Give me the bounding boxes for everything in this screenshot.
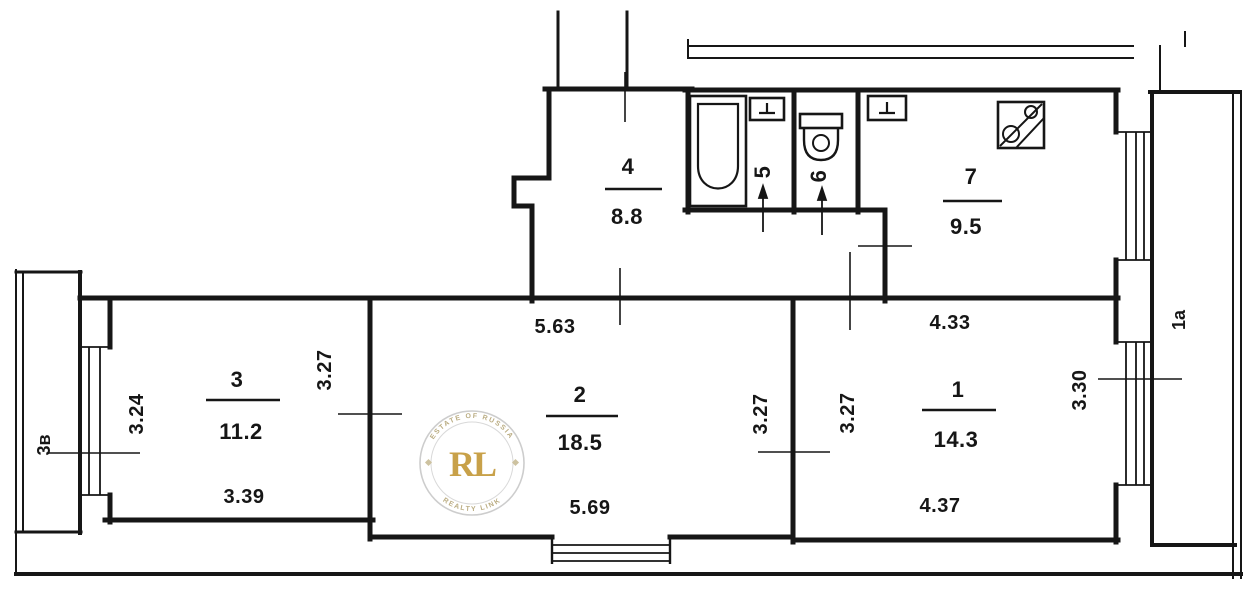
dim-room3-right: 3.27 — [314, 350, 336, 391]
room-labels: 1 14.3 2 18.5 3 11.2 4 8.8 5 6 7 9.5 — [206, 154, 1002, 455]
room4-area: 8.8 — [611, 204, 643, 229]
window-kitchen-balcony-part — [1116, 132, 1152, 260]
room5-number: 5 — [750, 166, 775, 179]
watermark-letters: RL — [449, 444, 496, 484]
room2-number: 2 — [574, 382, 587, 407]
leader-room5-arrow — [759, 186, 767, 198]
stove-icon — [998, 102, 1044, 148]
dimension-labels: 5.63 4.33 3.39 5.69 4.37 3.24 3.27 3.27 … — [34, 309, 1189, 519]
dim-room2-top: 5.63 — [535, 316, 576, 338]
toilet-icon-part — [800, 114, 842, 128]
window-room2-bottom-part — [552, 537, 670, 564]
window-kitchen-balcony — [1116, 132, 1152, 260]
room7-area: 9.5 — [950, 214, 982, 239]
window-room1-balcony — [1116, 342, 1152, 485]
hall-left-wall — [514, 89, 549, 301]
sink-icon-part — [759, 103, 775, 113]
floor-plan-drawing: 1 14.3 2 18.5 3 11.2 4 8.8 5 6 7 9.5 5.6… — [0, 0, 1255, 600]
dim-room1-left: 3.27 — [837, 393, 859, 434]
dim-room3-bottom: 3.39 — [224, 486, 265, 508]
kitchen-sink-icon-part — [879, 102, 895, 113]
bathtub-icon — [690, 96, 746, 206]
dimension-ticks — [48, 72, 1182, 453]
building-left-edge — [16, 270, 23, 575]
room1-number: 1 — [952, 377, 965, 402]
dim-room3-left: 3.24 — [126, 393, 148, 434]
room3-area: 11.2 — [219, 419, 263, 444]
walls — [16, 12, 1241, 578]
window-room3-balcony-part — [80, 347, 110, 495]
dim-room2-bottom: 5.69 — [570, 497, 611, 519]
toilet-icon-part — [804, 128, 838, 160]
dim-room1-right: 3.30 — [1069, 370, 1091, 411]
dim-room1-top: 4.33 — [930, 312, 971, 334]
toilet-icon — [800, 114, 842, 160]
floor-plan-page: 1 14.3 2 18.5 3 11.2 4 8.8 5 6 7 9.5 5.6… — [0, 0, 1255, 600]
room7-number: 7 — [965, 164, 978, 189]
window-kitchen-balcony-part — [1126, 132, 1144, 260]
room1-area: 14.3 — [934, 427, 979, 452]
exterior-corridor-wall — [688, 40, 1133, 58]
building-right-edge — [1233, 92, 1241, 578]
room6-number: 6 — [806, 170, 831, 183]
watermark-logo: ESTATE OF RUSSIA REALTY LINK RL — [419, 410, 525, 516]
window-room1-balcony-part — [1126, 342, 1144, 485]
bathtub-icon-part — [698, 104, 738, 189]
dim-room1-bottom: 4.37 — [920, 495, 961, 517]
room2-area: 18.5 — [558, 430, 603, 455]
balcony-right-label: 1а — [1169, 309, 1189, 330]
kitchen-sink-icon — [868, 96, 906, 120]
balcony-left-label: 3в — [34, 434, 54, 455]
sink-icon — [750, 98, 784, 120]
exterior-corridor-wall — [1160, 32, 1185, 90]
room3-number: 3 — [231, 367, 244, 392]
leader-room6-arrow — [818, 188, 826, 200]
dim-room2-right: 3.27 — [750, 394, 772, 435]
window-room3-balcony — [80, 347, 110, 495]
toilet-icon-part — [813, 135, 829, 151]
window-room2-bottom-part — [552, 545, 670, 561]
room4-number: 4 — [622, 154, 635, 179]
window-room2-bottom — [552, 537, 670, 564]
fixtures — [690, 96, 1044, 206]
window-room1-balcony-part — [1116, 342, 1152, 485]
window-room3-balcony-part — [89, 347, 100, 495]
